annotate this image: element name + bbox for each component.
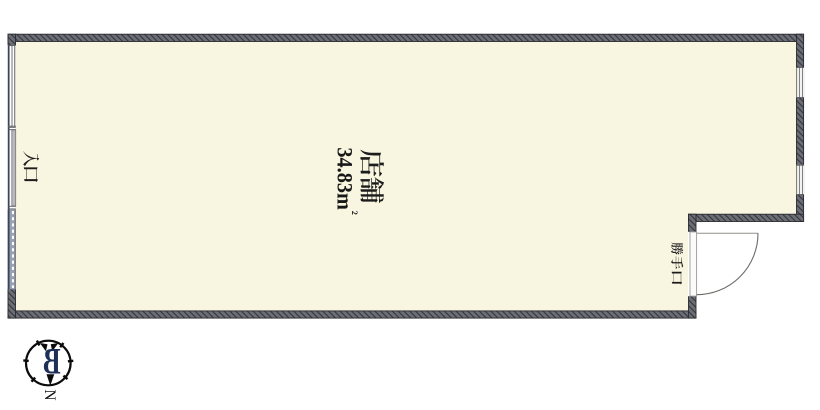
- svg-text:N: N: [41, 389, 58, 400]
- svg-text:²: ²: [345, 211, 360, 215]
- svg-text:B: B: [43, 341, 61, 381]
- svg-text:34.83m: 34.83m: [333, 147, 358, 210]
